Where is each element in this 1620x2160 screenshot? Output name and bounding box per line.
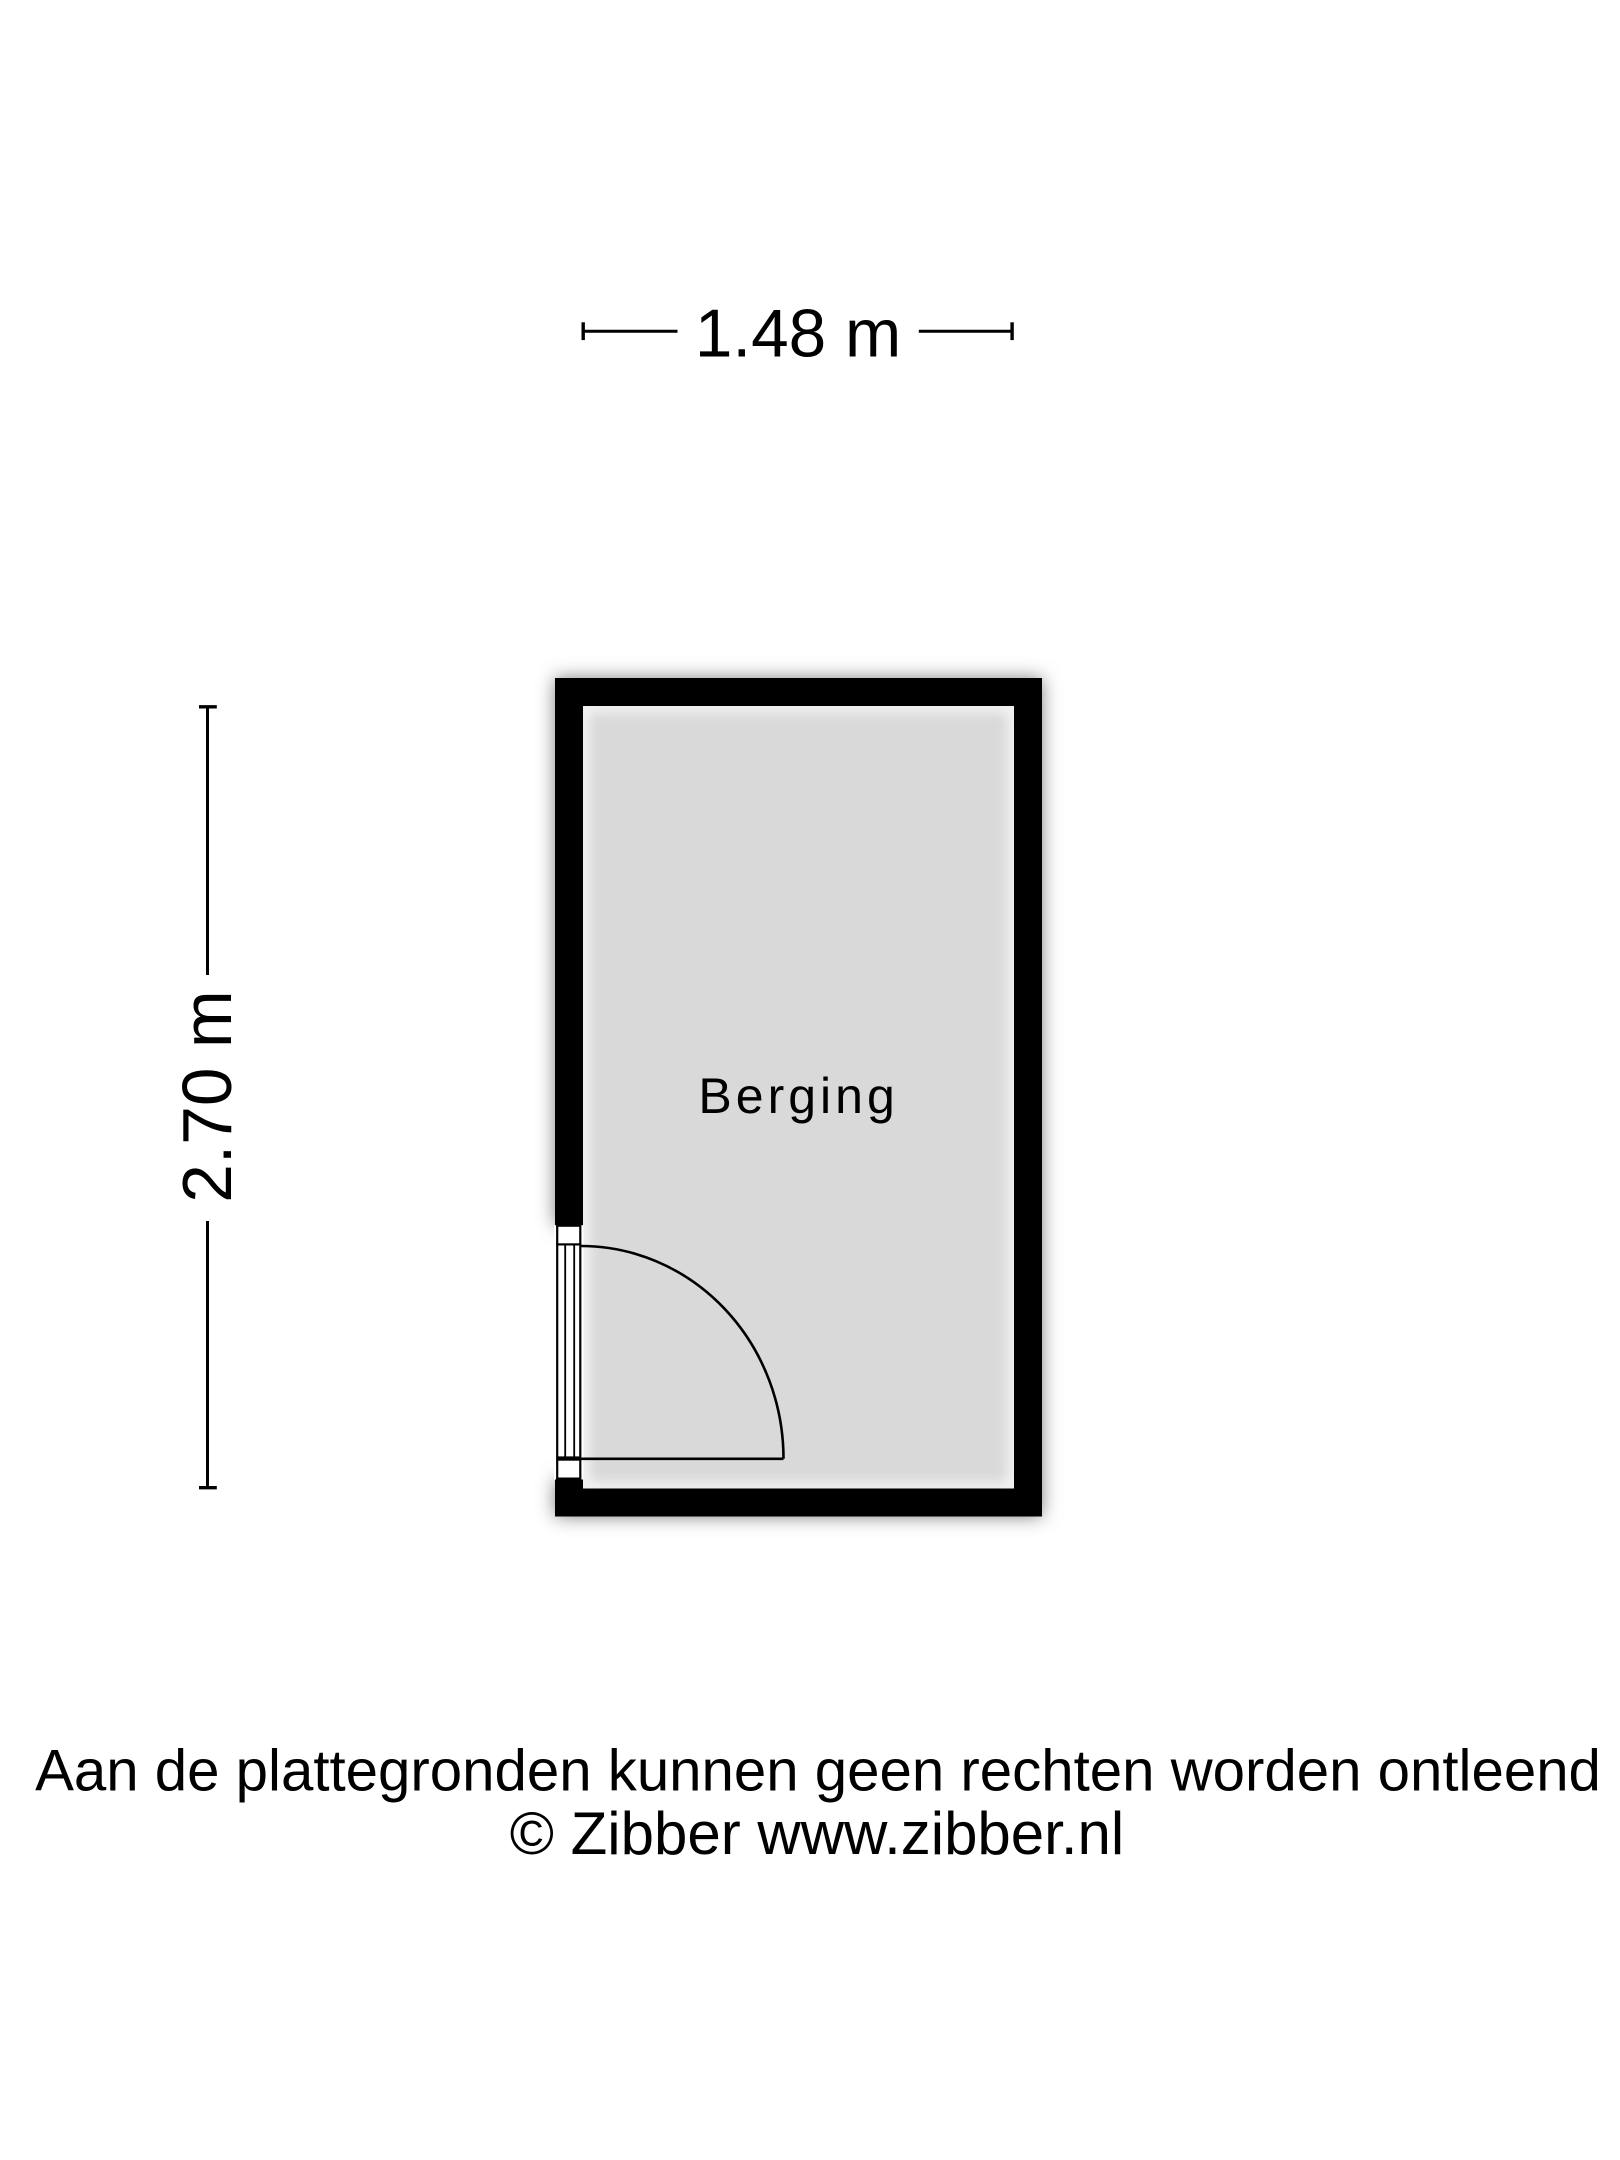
svg-text:Berging: Berging [698,1068,898,1124]
svg-text:2.70 m: 2.70 m [168,990,246,1202]
svg-text:1.48 m: 1.48 m [695,297,901,372]
svg-text:Aan de plattegronden kunnen ge: Aan de plattegronden kunnen geen rechten… [35,1739,1601,1804]
svg-text:© Zibber www.zibber.nl: © Zibber www.zibber.nl [510,1800,1124,1867]
